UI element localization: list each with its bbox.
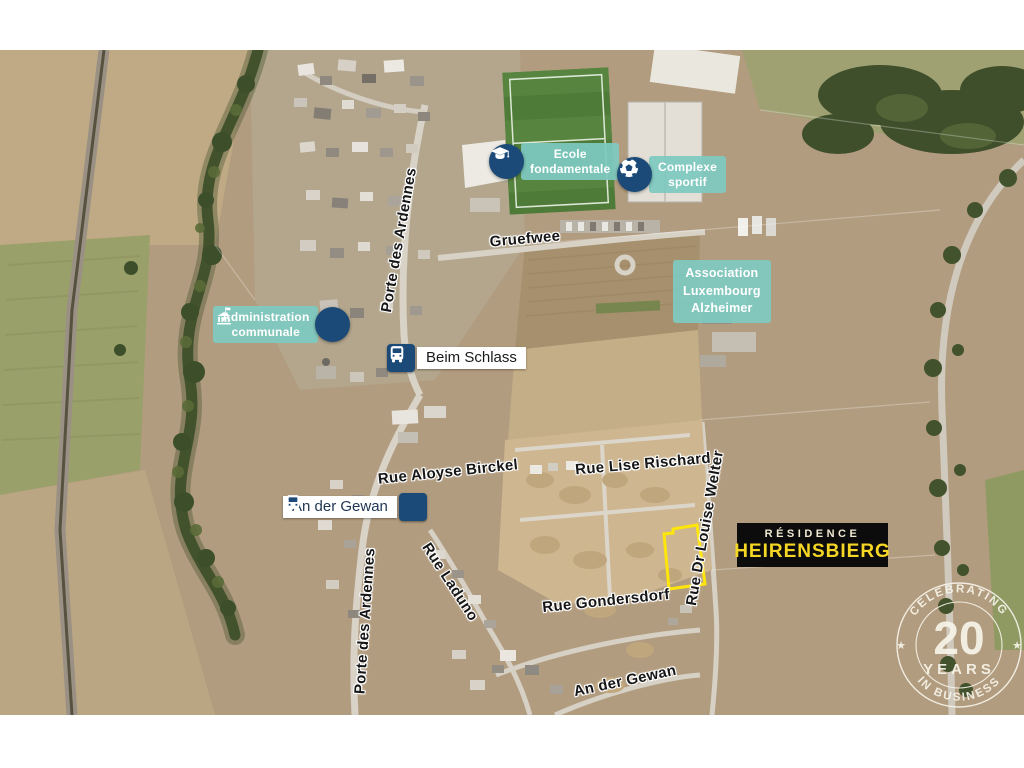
- marketing-map-page: CELEBRATING 20 YEARS IN BUSINESS ★ ★ Gru…: [0, 0, 1024, 768]
- residence-badge: RÉSIDENCE HEIRENSBIERG: [737, 523, 888, 567]
- bus-stop-beim-schlass: Beim Schlass: [387, 344, 526, 372]
- residence-name: HEIRENSBIERG: [734, 541, 891, 563]
- graduation-cap-icon: [489, 144, 524, 179]
- badge-years: YEARS: [923, 661, 995, 678]
- poi-label: Complexe sportif: [649, 156, 726, 193]
- poi-association-luxembourg-alzheimer: Association Luxembourg Alzheimer: [673, 260, 771, 323]
- badge-number: 20: [933, 612, 984, 664]
- poi-label: Ecole fondamentale: [521, 143, 619, 180]
- star-icon-right: ★: [1012, 640, 1022, 652]
- poi-label: Association Luxembourg Alzheimer: [673, 260, 771, 323]
- satellite-map: CELEBRATING 20 YEARS IN BUSINESS ★ ★ Gru…: [0, 50, 1024, 715]
- residence-type: RÉSIDENCE: [765, 528, 861, 540]
- bus-stop-label: Beim Schlass: [417, 347, 526, 369]
- poi-complexe-sportif: Complexe sportif: [617, 156, 726, 193]
- poi-administration-communale: Administration communale: [213, 306, 350, 343]
- town-hall-icon: [315, 307, 350, 342]
- bus-stop-an-der-gewan: An der Gewan: [283, 493, 427, 521]
- poi-ecole-fondamentale: Ecole fondamentale: [489, 143, 619, 180]
- soccer-ball-icon: [617, 157, 652, 192]
- bus-icon: [387, 344, 415, 372]
- star-icon-left: ★: [896, 640, 906, 652]
- bus-icon: [399, 493, 427, 521]
